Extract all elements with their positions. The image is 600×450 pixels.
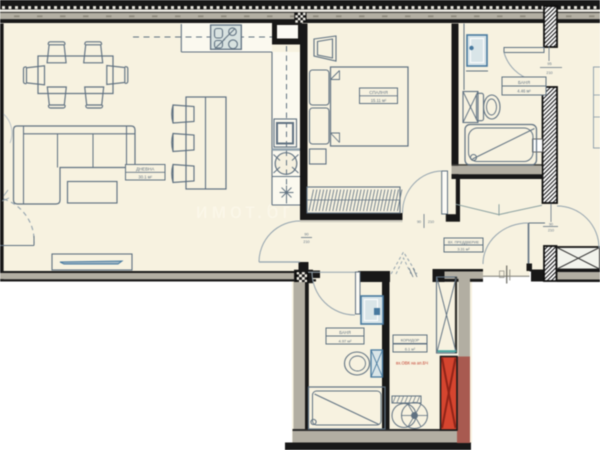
svg-text:4.46 м²: 4.46 м² xyxy=(517,89,531,94)
svg-text:210: 210 xyxy=(428,220,434,224)
svg-text:СПАЛНЯ: СПАЛНЯ xyxy=(369,90,388,95)
svg-text:КОРИДОР: КОРИДОР xyxy=(401,339,420,343)
svg-text:90: 90 xyxy=(549,223,553,227)
svg-text:4.97 м²: 4.97 м² xyxy=(339,339,353,344)
svg-text:ВХ. ПРЕДДВЕРИЕ: ВХ. ПРЕДДВЕРИЕ xyxy=(448,241,480,245)
svg-text:3.31 м²: 3.31 м² xyxy=(457,248,470,252)
svg-text:вх.ОВК на ап.БЧ: вх.ОВК на ап.БЧ xyxy=(396,361,428,366)
svg-text:90: 90 xyxy=(417,220,421,224)
svg-text:6.1 м²: 6.1 м² xyxy=(405,348,416,352)
svg-text:15.11 м²: 15.11 м² xyxy=(371,98,387,103)
svg-text:210: 210 xyxy=(303,240,309,244)
svg-text:210: 210 xyxy=(548,229,554,233)
svg-text:30.1 м²: 30.1 м² xyxy=(138,174,152,179)
svg-text:ДНЕВНА: ДНЕВНА xyxy=(136,167,154,172)
svg-text:90: 90 xyxy=(304,233,308,237)
svg-text:210: 210 xyxy=(546,71,552,75)
svg-text:БАНЯ: БАНЯ xyxy=(518,80,530,85)
svg-text:95: 95 xyxy=(547,62,551,66)
svg-text:БАНЯ: БАНЯ xyxy=(339,330,351,335)
